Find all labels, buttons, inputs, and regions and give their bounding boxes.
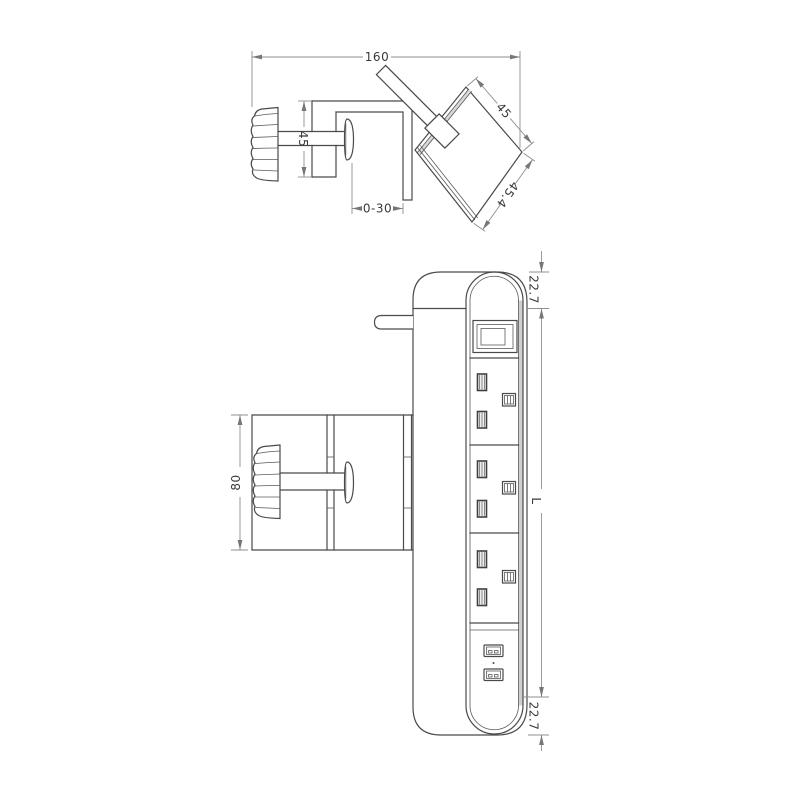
- socket-pin-slot: [478, 412, 487, 429]
- dim-bracket-height: 45: [296, 101, 311, 177]
- dim-body-length: L: [524, 309, 549, 698]
- pressure-pad-front: [345, 462, 354, 503]
- front-view: 80 22.7 L 22.7: [229, 251, 549, 751]
- socket-3: [478, 551, 516, 606]
- clamp-front: [252, 415, 413, 550]
- drawing-canvas: 160 45 0-30 45: [0, 0, 800, 800]
- socket-pin-slot: [478, 374, 487, 391]
- usb-port: [484, 669, 503, 681]
- dim-label-22-7-top: 22.7: [527, 275, 541, 304]
- socket-earth-slot: [503, 394, 516, 407]
- dim-top-offset: 22.7: [527, 251, 550, 309]
- strip-body: [375, 272, 528, 735]
- usb-port: [484, 645, 503, 657]
- socket-2: [478, 461, 516, 517]
- socket-earth-slot: [503, 482, 516, 495]
- dim-bottom-offset: 22.7: [527, 702, 550, 751]
- pressure-pad-side: [345, 119, 354, 160]
- side-view: 160 45 0-30 45: [251, 50, 535, 231]
- clamp-knob-front: [253, 445, 280, 519]
- screw-shaft-side: [278, 132, 345, 146]
- socket-earth-slot: [503, 571, 516, 584]
- screw-shaft-front: [280, 473, 345, 490]
- dim-label-22-7-bottom: 22.7: [527, 702, 541, 731]
- dim-label-160: 160: [365, 50, 389, 64]
- swivel-arm: [376, 65, 436, 125]
- usb-indicator-dot: [493, 662, 495, 664]
- power-switch: [473, 321, 517, 353]
- c-clamp-frame-side: [312, 101, 412, 200]
- strip-face: [466, 272, 523, 734]
- socket-pin-slot: [478, 589, 487, 606]
- dim-label-45-bracket: 45: [296, 131, 310, 147]
- socket-pin-slot: [478, 461, 487, 478]
- wall-tab: [375, 316, 414, 330]
- technical-drawing-sheet: 160 45 0-30 45: [0, 0, 800, 800]
- usb-ports: [484, 645, 503, 681]
- dim-label-45-head: 45: [493, 100, 514, 121]
- clamp-knob-side: [251, 108, 278, 182]
- dim-label-L: L: [529, 497, 543, 504]
- dim-label-0-30: 0-30: [363, 202, 392, 216]
- socket-1: [478, 374, 516, 428]
- dim-jaw-opening: 0-30: [352, 163, 403, 216]
- socket-pin-slot: [478, 501, 487, 518]
- dim-label-80: 80: [229, 474, 243, 490]
- dim-clamp-height: 80: [229, 415, 248, 550]
- socket-pin-slot: [478, 551, 487, 568]
